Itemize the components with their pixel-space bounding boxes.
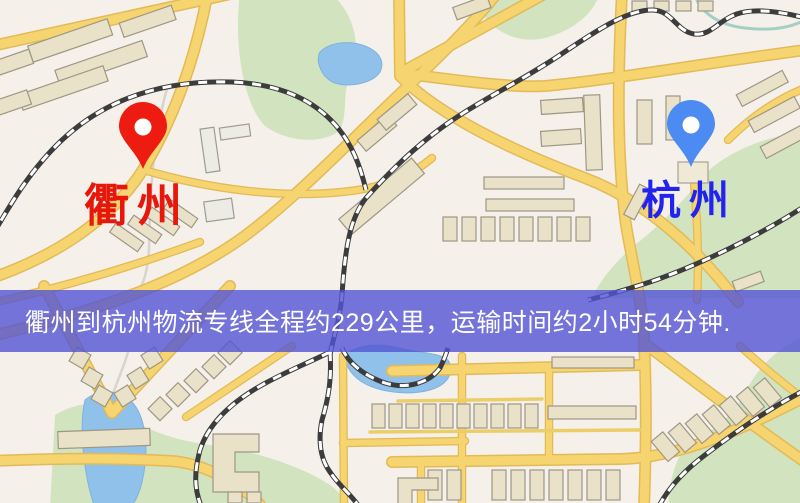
destination-pin[interactable]	[667, 100, 715, 167]
map-pin-icon	[119, 102, 167, 169]
block-border-line-2	[370, 430, 640, 432]
origin-label: 衢州	[84, 180, 190, 231]
block-border-line-1	[398, 399, 542, 401]
map-svg: 衢州 杭州	[0, 0, 800, 503]
origin-pin[interactable]	[119, 102, 167, 169]
route-banner-text: 衢州到杭州物流专线全程约229公里，运输时间约2小时54分钟.	[25, 303, 731, 339]
map-image: 衢州 杭州 衢州到杭州物流专线全程约229公里，运输时间约2小时54分钟.	[0, 0, 800, 503]
route-banner: 衢州到杭州物流专线全程约229公里，运输时间约2小时54分钟.	[0, 290, 800, 352]
map-pin-icon	[667, 100, 715, 167]
destination-label: 杭州	[641, 179, 737, 223]
